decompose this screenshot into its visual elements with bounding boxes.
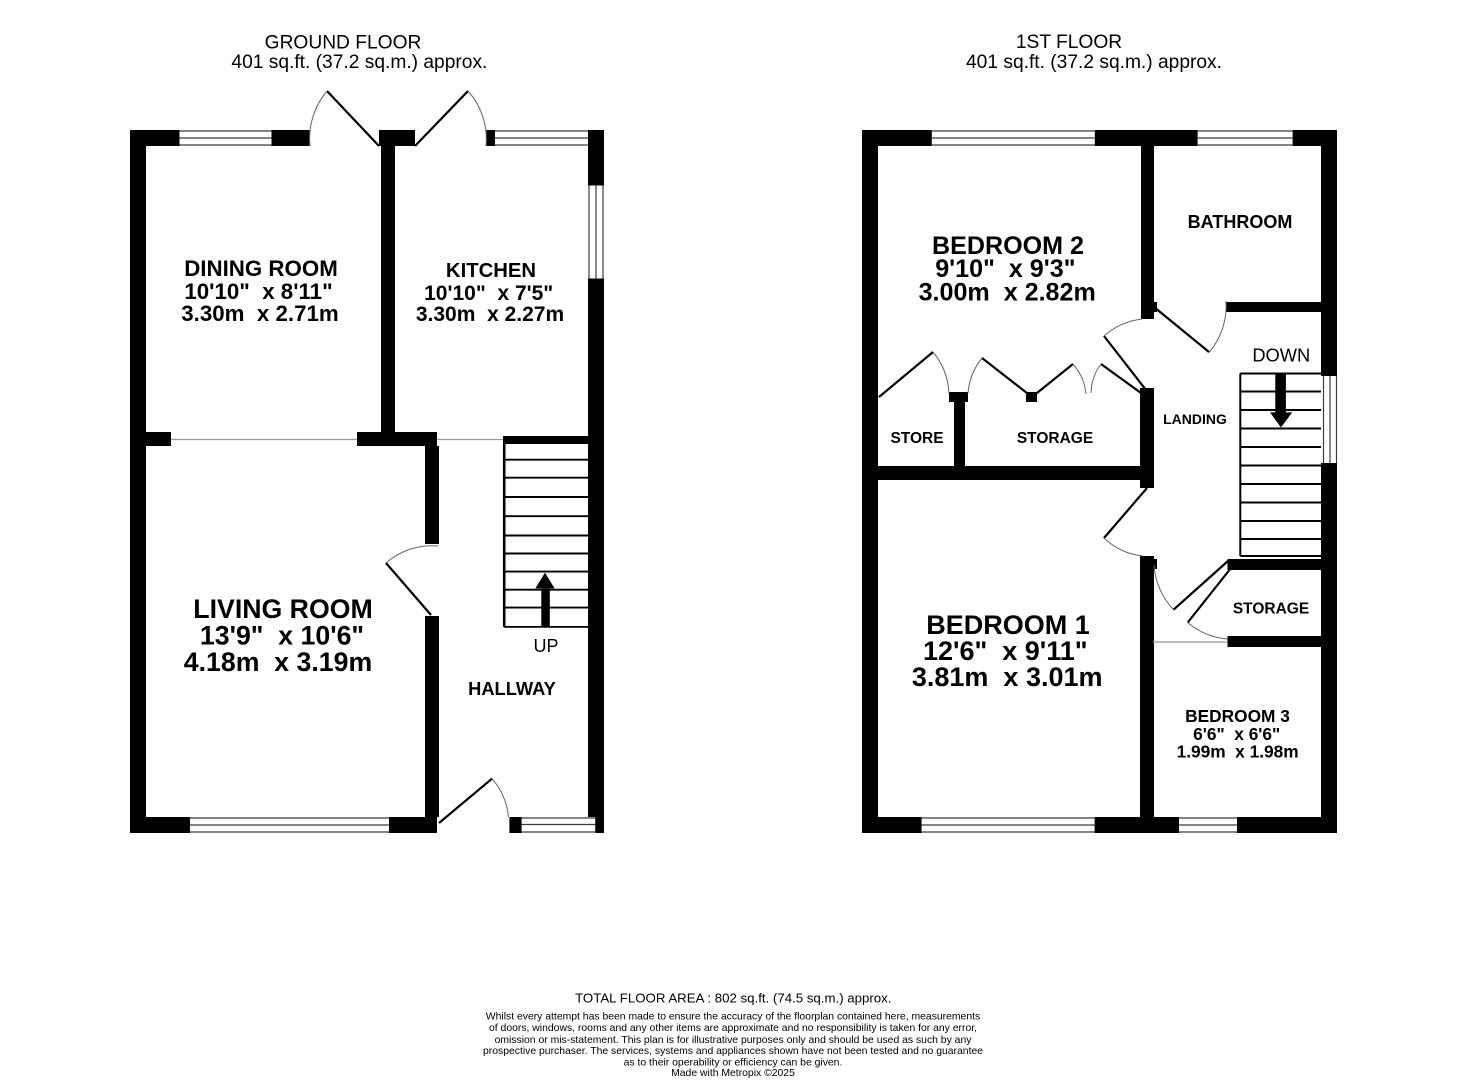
svg-text:HALLWAY: HALLWAY bbox=[468, 678, 556, 699]
svg-text:13'9" x 10'6": 13'9" x 10'6" bbox=[200, 621, 364, 651]
svg-text:STORAGE: STORAGE bbox=[1017, 430, 1093, 447]
svg-text:1ST FLOOR: 1ST FLOOR bbox=[1016, 32, 1122, 53]
svg-text:3.00m x 2.82m: 3.00m x 2.82m bbox=[919, 279, 1096, 307]
svg-text:UP: UP bbox=[533, 636, 558, 656]
svg-text:KITCHEN: KITCHEN bbox=[446, 260, 536, 282]
svg-text:10'10" x 7'5": 10'10" x 7'5" bbox=[424, 282, 553, 305]
svg-text:DOWN: DOWN bbox=[1252, 345, 1310, 366]
svg-text:BEDROOM 3: BEDROOM 3 bbox=[1185, 706, 1290, 726]
svg-text:omission or mis-statement. Thi: omission or mis-statement. This plan is … bbox=[495, 1035, 973, 1046]
svg-text:Whilst every attempt has been: Whilst every attempt has been made to en… bbox=[486, 1012, 980, 1023]
svg-text:TOTAL FLOOR AREA : 802 sq.ft.: TOTAL FLOOR AREA : 802 sq.ft. (74.5 sq.m… bbox=[575, 990, 891, 1005]
svg-text:LANDING: LANDING bbox=[1163, 411, 1227, 427]
svg-text:as to their operability or eff: as to their operability or efficiency ca… bbox=[624, 1057, 843, 1068]
svg-text:401 sq.ft. (37.2 sq.m.) approx: 401 sq.ft. (37.2 sq.m.) approx. bbox=[231, 52, 487, 73]
svg-text:DINING ROOM: DINING ROOM bbox=[184, 256, 338, 281]
svg-text:GROUND FLOOR: GROUND FLOOR bbox=[265, 33, 422, 54]
svg-text:3.30m x 2.27m: 3.30m x 2.27m bbox=[416, 303, 564, 326]
svg-text:1.99m x 1.98m: 1.99m x 1.98m bbox=[1177, 742, 1299, 762]
svg-text:of doors, windows, rooms and a: of doors, windows, rooms and any other i… bbox=[489, 1023, 977, 1034]
svg-text:LIVING ROOM: LIVING ROOM bbox=[193, 594, 372, 624]
svg-text:STORE: STORE bbox=[890, 430, 943, 447]
svg-text:prospective purchaser. The ser: prospective purchaser. The services, sys… bbox=[483, 1046, 983, 1057]
svg-text:STORAGE: STORAGE bbox=[1233, 601, 1309, 618]
svg-text:3.81m x 3.01m: 3.81m x 3.01m bbox=[912, 662, 1103, 692]
svg-text:BATHROOM: BATHROOM bbox=[1188, 212, 1293, 232]
svg-text:401 sq.ft. (37.2 sq.m.) approx: 401 sq.ft. (37.2 sq.m.) approx. bbox=[966, 52, 1222, 73]
svg-text:Made with Metropix ©2025: Made with Metropix ©2025 bbox=[671, 1068, 795, 1079]
svg-text:4.18m x 3.19m: 4.18m x 3.19m bbox=[184, 647, 372, 677]
svg-text:3.30m x 2.71m: 3.30m x 2.71m bbox=[181, 301, 338, 326]
